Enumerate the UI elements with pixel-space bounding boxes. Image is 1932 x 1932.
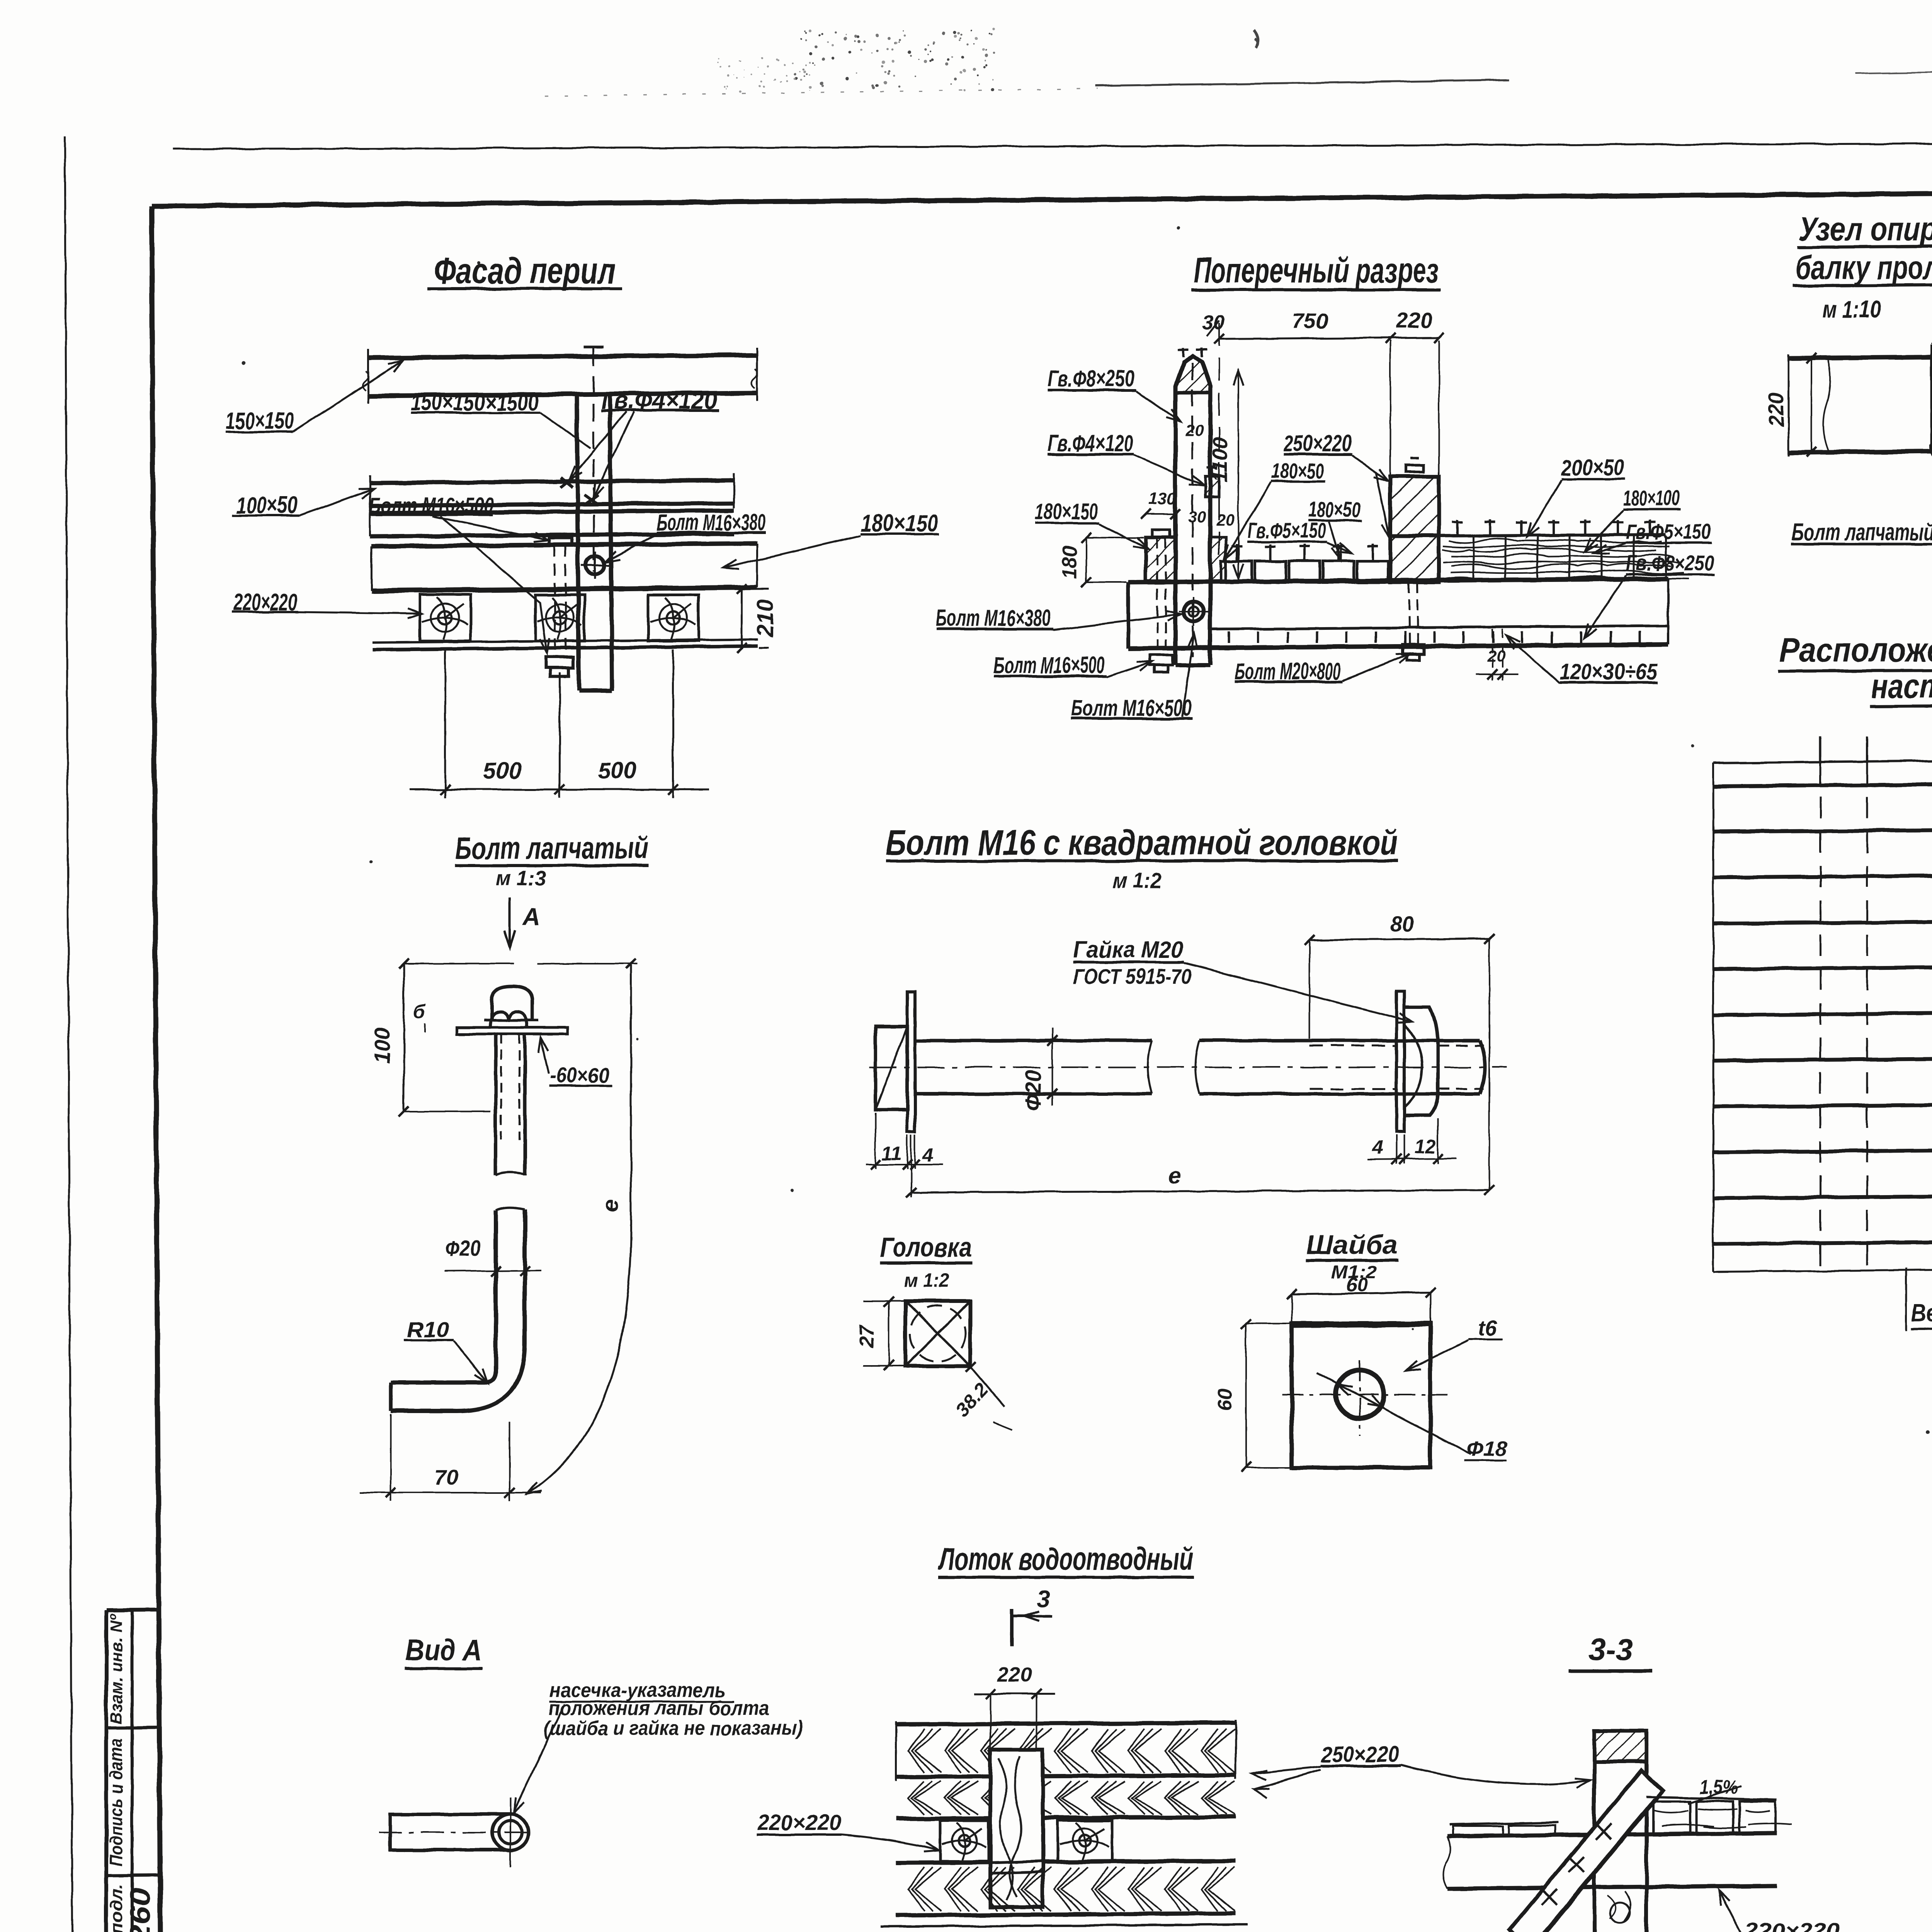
svg-text:R10: R10 bbox=[407, 1317, 449, 1342]
svg-text:Вид А: Вид А bbox=[405, 1634, 482, 1667]
svg-text:220×220: 220×220 bbox=[757, 1810, 841, 1835]
svg-text:4: 4 bbox=[922, 1144, 934, 1166]
svg-text:250×220: 250×220 bbox=[1321, 1742, 1399, 1767]
svg-text:положения лапы болта: положения лапы болта bbox=[548, 1697, 769, 1719]
svg-text:250×220: 250×220 bbox=[1283, 430, 1352, 456]
svg-text:3: 3 bbox=[1037, 1586, 1049, 1612]
svg-text:750: 750 bbox=[1292, 309, 1328, 333]
svg-text:3-3: 3-3 bbox=[1588, 1632, 1633, 1667]
svg-text:4: 4 bbox=[1372, 1136, 1383, 1158]
svg-text:балку пролетного строения: балку пролетного строения bbox=[1796, 249, 1932, 286]
svg-text:180×50: 180×50 bbox=[1271, 459, 1324, 483]
svg-text:Болт М16×380: Болт М16×380 bbox=[935, 605, 1051, 631]
svg-text:150×150×1500: 150×150×1500 bbox=[410, 389, 539, 415]
svg-text:Взам. инв. Nº: Взам. инв. Nº bbox=[107, 1614, 126, 1725]
svg-text:м 1:3: м 1:3 bbox=[496, 866, 546, 890]
svg-text:220: 220 bbox=[997, 1663, 1032, 1686]
svg-text:80: 80 bbox=[1390, 912, 1414, 936]
svg-text:60: 60 bbox=[1346, 1274, 1368, 1296]
svg-text:Гв.Ф5×150: Гв.Ф5×150 bbox=[1626, 519, 1711, 544]
svg-text:Поперечный разрез: Поперечный разрез bbox=[1193, 251, 1439, 290]
svg-text:12: 12 bbox=[1414, 1136, 1436, 1157]
svg-text:Расположение стыков досок в: Расположение стыков досок верхнего и ниж… bbox=[1780, 631, 1932, 669]
svg-text:Болт М16×500: Болт М16×500 bbox=[993, 652, 1105, 678]
svg-text:Гв.Ф5×150: Гв.Ф5×150 bbox=[1247, 518, 1326, 543]
svg-text:27: 27 bbox=[855, 1325, 878, 1349]
svg-text:1100: 1100 bbox=[1209, 437, 1232, 482]
svg-text:60: 60 bbox=[1214, 1388, 1236, 1411]
svg-text:180×100: 180×100 bbox=[1623, 486, 1680, 510]
svg-text:Верхний защитный: Верхний защитный bbox=[1912, 1298, 1932, 1327]
svg-text:Болт лапчатый: Болт лапчатый bbox=[455, 831, 648, 865]
svg-text:Гв.Ф8×250: Гв.Ф8×250 bbox=[1048, 366, 1135, 391]
svg-text:100: 100 bbox=[370, 1027, 394, 1063]
svg-text:220: 220 bbox=[1396, 308, 1432, 332]
svg-text:-60×60: -60×60 bbox=[550, 1063, 610, 1087]
svg-text:е: е bbox=[597, 1199, 623, 1212]
svg-text:180×150: 180×150 bbox=[861, 510, 938, 537]
svg-text:t6: t6 bbox=[1478, 1316, 1498, 1340]
svg-text:150×150: 150×150 bbox=[226, 408, 294, 434]
svg-text:Ф20: Ф20 bbox=[1021, 1070, 1045, 1111]
svg-text:м 1:2: м 1:2 bbox=[1113, 868, 1162, 893]
svg-text:Подпись и дата: Подпись и дата bbox=[106, 1739, 126, 1866]
svg-text:м 1:2: м 1:2 bbox=[904, 1269, 950, 1291]
svg-text:120×30÷65: 120×30÷65 bbox=[1560, 659, 1658, 684]
svg-text:Болт лапчатый: Болт лапчатый bbox=[1792, 519, 1932, 546]
svg-text:200×50: 200×50 bbox=[1561, 455, 1624, 480]
svg-text:130: 130 bbox=[1148, 489, 1177, 508]
svg-text:Болт М16 с квадратной голо: Болт М16 с квадратной головкой bbox=[886, 823, 1398, 862]
svg-text:Ф20: Ф20 bbox=[445, 1236, 481, 1260]
svg-text:м 1:10: м 1:10 bbox=[1823, 296, 1881, 323]
svg-text:А: А bbox=[522, 903, 540, 931]
svg-text:20: 20 bbox=[1487, 647, 1505, 665]
svg-text:Шайба: Шайба bbox=[1306, 1230, 1398, 1260]
svg-text:220×220: 220×220 bbox=[1744, 1918, 1839, 1932]
svg-text:Фасад перил: Фасад перил bbox=[434, 250, 616, 291]
svg-text:Гв.Ф4×120: Гв.Ф4×120 bbox=[1048, 430, 1133, 456]
svg-text:361260: 361260 bbox=[124, 1888, 156, 1932]
svg-text:1,5%: 1,5% bbox=[1699, 1776, 1738, 1798]
svg-text:30: 30 bbox=[1188, 508, 1206, 526]
svg-text:Лоток водоотводный: Лоток водоотводный bbox=[937, 1541, 1193, 1577]
svg-text:ГОСТ 5915-70: ГОСТ 5915-70 bbox=[1073, 964, 1191, 988]
svg-text:Ф18: Ф18 bbox=[1467, 1436, 1508, 1461]
svg-text:Гв.Ф8×250: Гв.Ф8×250 bbox=[1626, 551, 1714, 575]
svg-text:Головка: Головка bbox=[880, 1232, 972, 1262]
svg-text:210: 210 bbox=[753, 600, 778, 638]
svg-text:Гайка М20: Гайка М20 bbox=[1073, 937, 1184, 963]
svg-text:(шайба и гайка не показаны): (шайба и гайка не показаны) bbox=[544, 1717, 803, 1740]
svg-text:220: 220 bbox=[1765, 392, 1788, 427]
svg-text:30: 30 bbox=[1202, 311, 1225, 334]
svg-text:20: 20 bbox=[1185, 421, 1204, 439]
svg-text:180: 180 bbox=[1059, 546, 1081, 579]
svg-text:настилов дощатой проезжей: настилов дощатой проезжей части bbox=[1871, 667, 1932, 705]
svg-text:б: б bbox=[413, 1000, 426, 1022]
svg-text:500: 500 bbox=[598, 758, 636, 784]
svg-text:500: 500 bbox=[483, 758, 522, 784]
svg-text:20: 20 bbox=[1216, 511, 1235, 529]
svg-text:Инв. Nºподл.: Инв. Nºподл. bbox=[107, 1884, 126, 1932]
svg-text:е: е bbox=[1168, 1162, 1181, 1188]
svg-text:70: 70 bbox=[434, 1465, 458, 1489]
svg-text:Узел опирания поперечины на: Узел опирания поперечины на bbox=[1799, 211, 1932, 248]
svg-text:11: 11 bbox=[882, 1143, 902, 1164]
svg-text:180×150: 180×150 bbox=[1035, 499, 1098, 524]
svg-text:Болт М16×500: Болт М16×500 bbox=[1071, 695, 1192, 721]
